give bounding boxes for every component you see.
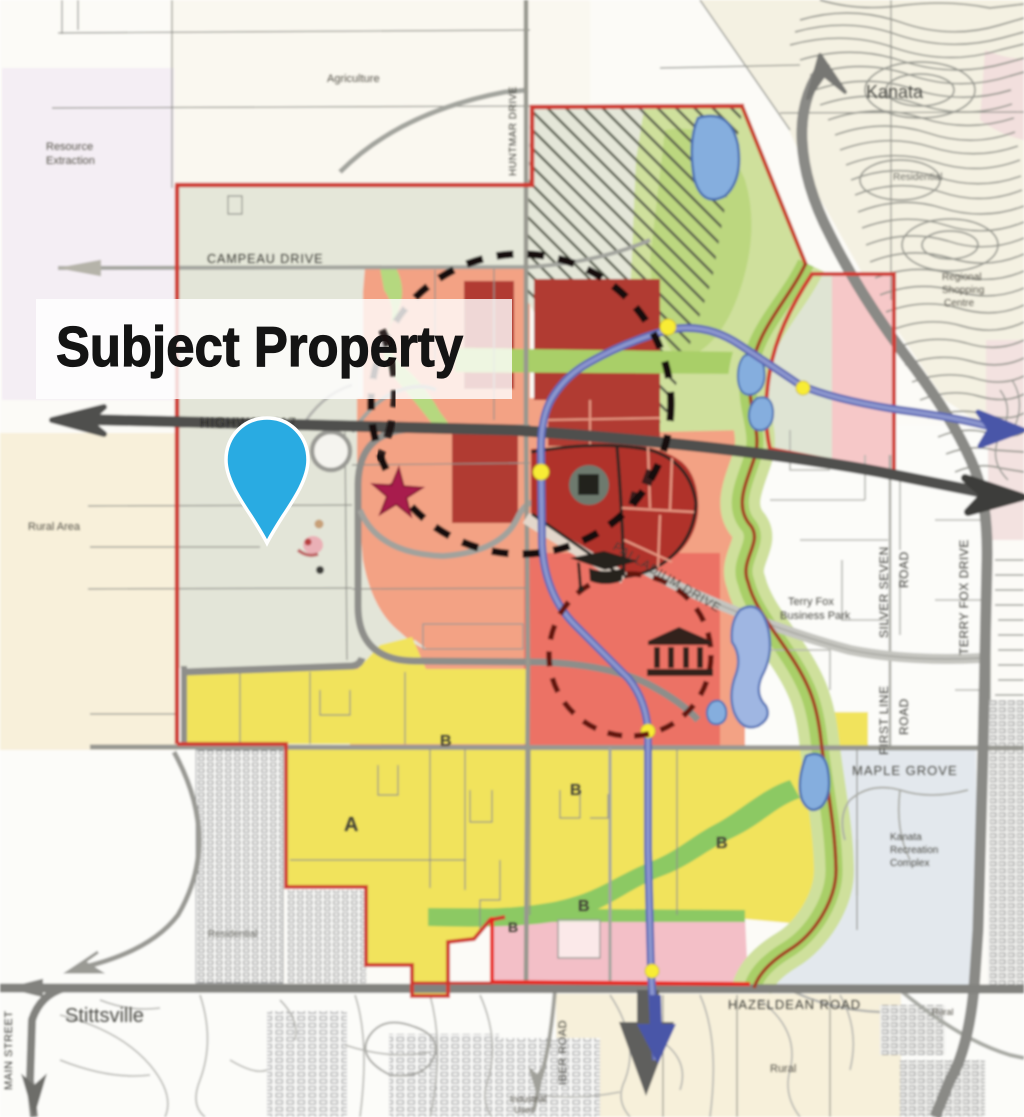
svg-text:B: B bbox=[716, 835, 728, 852]
svg-text:Rural Area: Rural Area bbox=[28, 521, 81, 533]
svg-text:Rural: Rural bbox=[770, 1063, 796, 1075]
svg-text:HAZELDEAN ROAD: HAZELDEAN ROAD bbox=[728, 997, 861, 1012]
svg-text:Stittsville: Stittsville bbox=[65, 1005, 144, 1027]
svg-text:TERRY FOX DRIVE: TERRY FOX DRIVE bbox=[957, 539, 971, 655]
svg-text:Residential: Residential bbox=[208, 929, 257, 940]
svg-text:Terry Fox: Terry Fox bbox=[788, 596, 834, 608]
svg-text:Regional: Regional bbox=[942, 272, 981, 283]
svg-text:Kanata: Kanata bbox=[890, 832, 922, 843]
svg-text:Residential: Residential bbox=[893, 172, 942, 183]
svg-text:HUNTMAR DRIVE: HUNTMAR DRIVE bbox=[508, 86, 519, 176]
svg-text:Shopping: Shopping bbox=[942, 285, 984, 296]
svg-text:Resource: Resource bbox=[46, 141, 93, 153]
svg-text:MAIN STREET: MAIN STREET bbox=[3, 1011, 15, 1090]
svg-text:B: B bbox=[578, 898, 590, 915]
svg-text:ROAD: ROAD bbox=[897, 551, 911, 588]
svg-text:Recreation: Recreation bbox=[890, 845, 938, 856]
svg-text:Kanata: Kanata bbox=[866, 82, 924, 102]
svg-text:Subject Property: Subject Property bbox=[56, 315, 463, 379]
svg-text:IBER ROAD: IBER ROAD bbox=[557, 1020, 569, 1085]
svg-text:MAPLE GROVE: MAPLE GROVE bbox=[852, 763, 958, 778]
svg-text:A: A bbox=[344, 814, 358, 836]
svg-text:FIRST LINE: FIRST LINE bbox=[877, 686, 891, 755]
svg-text:Rural: Rural bbox=[932, 1007, 954, 1017]
svg-text:Uses: Uses bbox=[514, 1105, 535, 1115]
svg-text:Extraction: Extraction bbox=[46, 155, 95, 167]
svg-text:B: B bbox=[508, 919, 518, 935]
svg-text:B: B bbox=[570, 782, 582, 799]
svg-text:Business Park: Business Park bbox=[780, 610, 851, 622]
svg-text:Complex: Complex bbox=[890, 858, 929, 869]
svg-text:ROAD: ROAD bbox=[897, 698, 911, 735]
svg-text:Industrial: Industrial bbox=[510, 1094, 547, 1104]
svg-text:Agriculture: Agriculture bbox=[327, 73, 380, 85]
svg-text:Centre: Centre bbox=[944, 298, 974, 309]
svg-text:SILVER SEVEN: SILVER SEVEN bbox=[877, 546, 891, 638]
svg-text:CAMPEAU DRIVE: CAMPEAU DRIVE bbox=[207, 252, 324, 266]
svg-text:B: B bbox=[440, 733, 452, 750]
